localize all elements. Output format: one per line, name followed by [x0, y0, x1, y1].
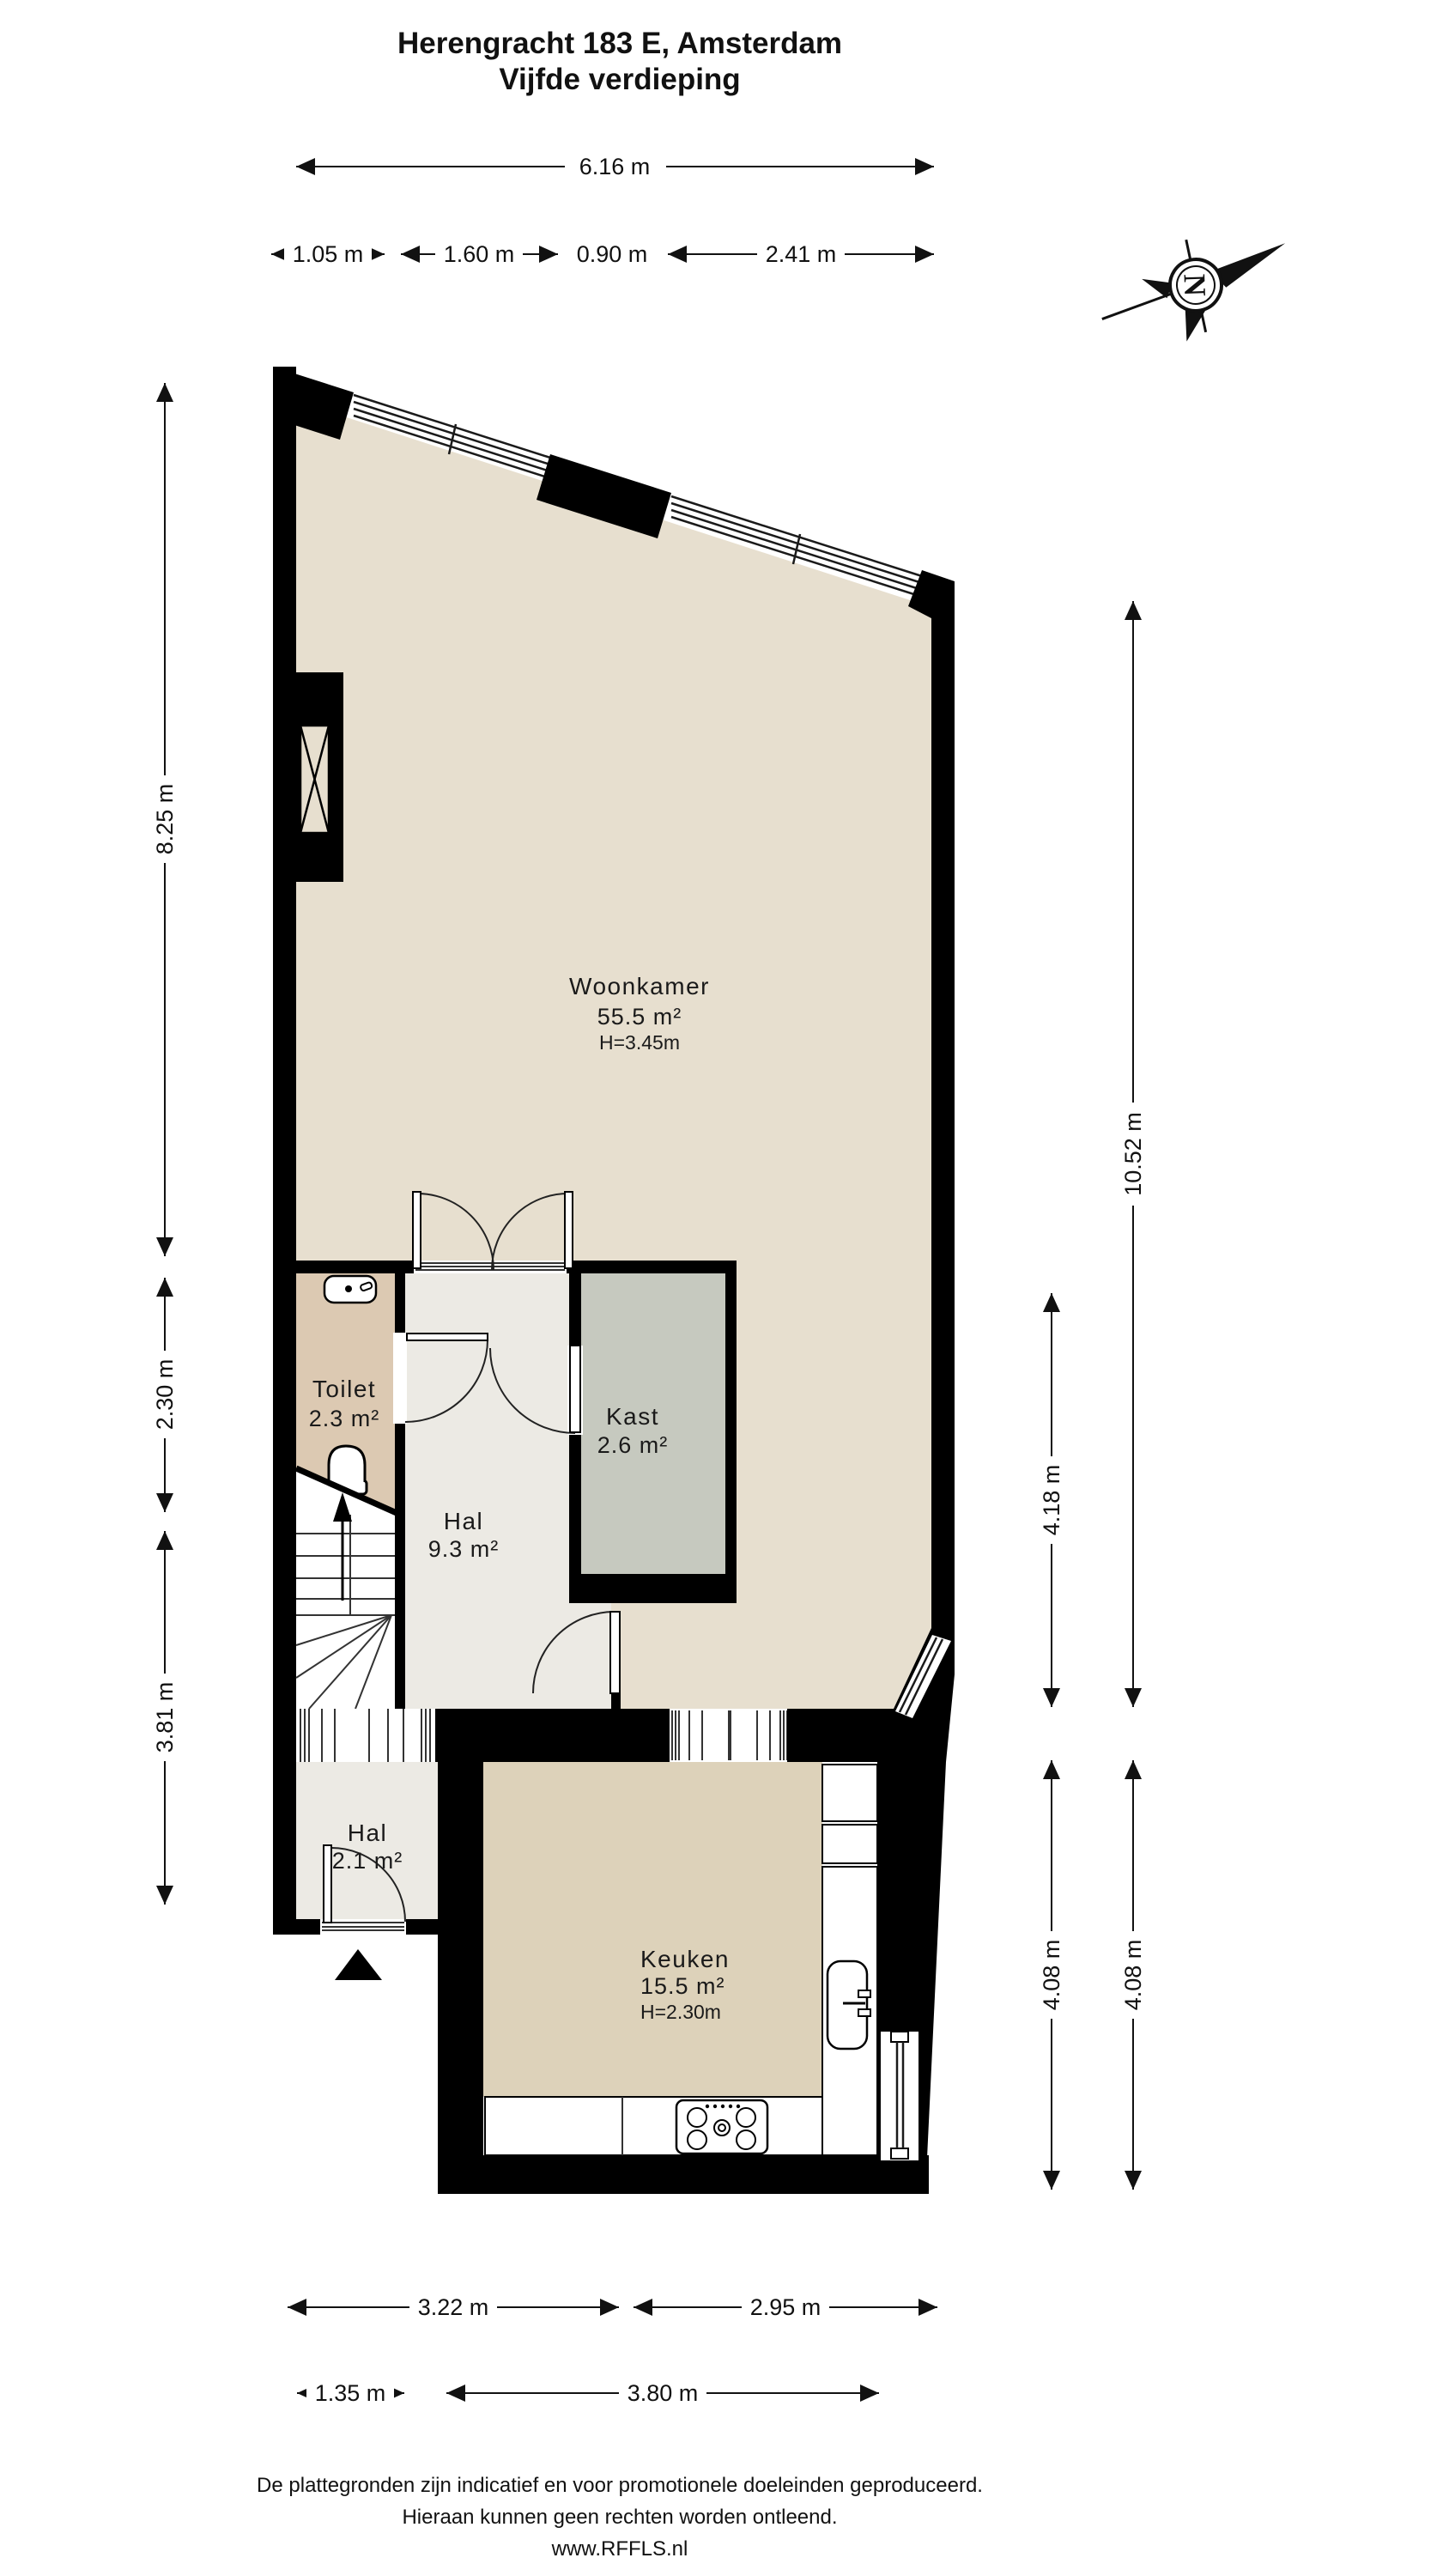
room-ceiling: H=3.45m: [599, 1031, 680, 1054]
footer-line1: De plattegronden zijn indicatief en voor…: [257, 2474, 983, 2497]
dim-right-3: 4.08 m: [1038, 1760, 1065, 2190]
entrance-arrow: [335, 1949, 382, 1980]
dim-label: 3.81 m: [152, 1682, 178, 1753]
compass-north-icon: N: [1089, 220, 1300, 358]
kitchen-tall-units: [822, 1765, 877, 2155]
dim-label: 2.30 m: [152, 1359, 178, 1431]
room-name: Woonkamer: [569, 973, 710, 999]
title-line1: Herengracht 183 E, Amsterdam: [397, 27, 842, 60]
title-line2: Vijfde verdieping: [499, 63, 740, 96]
dim-bottom-3: 1.35 m: [297, 2379, 404, 2407]
dim-label: 4.08 m: [1120, 1940, 1146, 2011]
dim-label: 10.52 m: [1120, 1112, 1146, 1196]
gas-hob: [676, 2100, 767, 2154]
dim-label: 3.22 m: [418, 2294, 489, 2320]
dim-top-total: 6.16 m: [296, 153, 934, 180]
wall-hal-woonkamer: [273, 1261, 737, 1273]
dim-label: 3.80 m: [627, 2380, 699, 2406]
kitchen-sink: [828, 1961, 870, 2049]
dim-bottom-1: 3.22 m: [288, 2293, 619, 2321]
stair-void: [296, 1709, 435, 1762]
wall-left: [273, 367, 296, 1935]
footer-line3: www.RFFLS.nl: [551, 2537, 688, 2561]
dim-label: 1.05 m: [293, 241, 364, 267]
dim-label: 2.41 m: [766, 241, 837, 267]
dim-left-2: 2.30 m: [151, 1278, 179, 1512]
dim-top-4: 2.41 m: [668, 240, 934, 268]
dim-right-2: 4.18 m: [1038, 1293, 1065, 1707]
room-area: 2.6 m²: [597, 1432, 669, 1458]
room-name: Kast: [606, 1403, 659, 1430]
room-name: Toilet: [312, 1376, 376, 1402]
dim-label: 4.08 m: [1039, 1940, 1064, 2011]
dim-label: 4.18 m: [1039, 1465, 1064, 1536]
room-name: Hal: [444, 1508, 484, 1534]
page-title: Herengracht 183 E, Amsterdam Vijfde verd…: [397, 27, 842, 96]
shaft: [296, 672, 343, 882]
staircase: [296, 1468, 397, 1709]
dim-left-3: 3.81 m: [151, 1531, 179, 1905]
room-label-keuken: Keuken 15.5 m² H=2.30m: [640, 1946, 730, 2023]
room-area: 2.3 m²: [309, 1406, 380, 1431]
dim-bottom-4: 3.80 m: [446, 2379, 879, 2407]
dim-right-4: 4.08 m: [1119, 1760, 1147, 2190]
wall-toilet-hal: [393, 1273, 407, 1709]
glass-door-keuken: [670, 1709, 787, 1762]
footer-line2: Hieraan kunnen geen rechten worden ontle…: [402, 2506, 837, 2529]
floorplan-page: Herengracht 183 E, Amsterdam Vijfde verd…: [0, 0, 1449, 2576]
dim-label: 1.60 m: [444, 241, 515, 267]
wall-right: [931, 583, 955, 1607]
dim-label: 8.25 m: [152, 784, 178, 855]
floorplan-canvas: Herengracht 183 E, Amsterdam Vijfde verd…: [0, 0, 1449, 2576]
dim-top-1: 1.05 m: [271, 240, 385, 268]
dim-left-1: 8.25 m: [151, 383, 179, 1256]
room-name: Hal: [348, 1820, 388, 1846]
kitchen-counter-bottom: [485, 2097, 822, 2155]
dim-top-2: 1.60 m: [401, 240, 558, 268]
dim-label: 0.90 m: [577, 241, 648, 267]
dim-label: 2.95 m: [750, 2294, 822, 2320]
room-area: 2.1 m²: [332, 1848, 403, 1874]
entrance-threshold: [320, 1919, 406, 1935]
room-area: 55.5 m²: [597, 1004, 682, 1030]
room-area: 9.3 m²: [428, 1536, 500, 1562]
compass-letter: N: [1178, 273, 1213, 296]
footer-disclaimer: De plattegronden zijn indicatief en voor…: [257, 2474, 983, 2561]
dim-right-1: 10.52 m: [1119, 601, 1147, 1707]
room-name: Keuken: [640, 1946, 730, 1972]
room-ceiling: H=2.30m: [640, 2001, 721, 2023]
sink: [324, 1276, 376, 1303]
dim-top-3: 0.90 m: [568, 240, 656, 268]
dim-bottom-2: 2.95 m: [634, 2293, 937, 2321]
kitchen-window: [881, 2032, 919, 2160]
room-area: 15.5 m²: [640, 1973, 725, 1999]
dim-label: 1.35 m: [315, 2380, 386, 2406]
dim-label: 6.16 m: [579, 154, 651, 179]
